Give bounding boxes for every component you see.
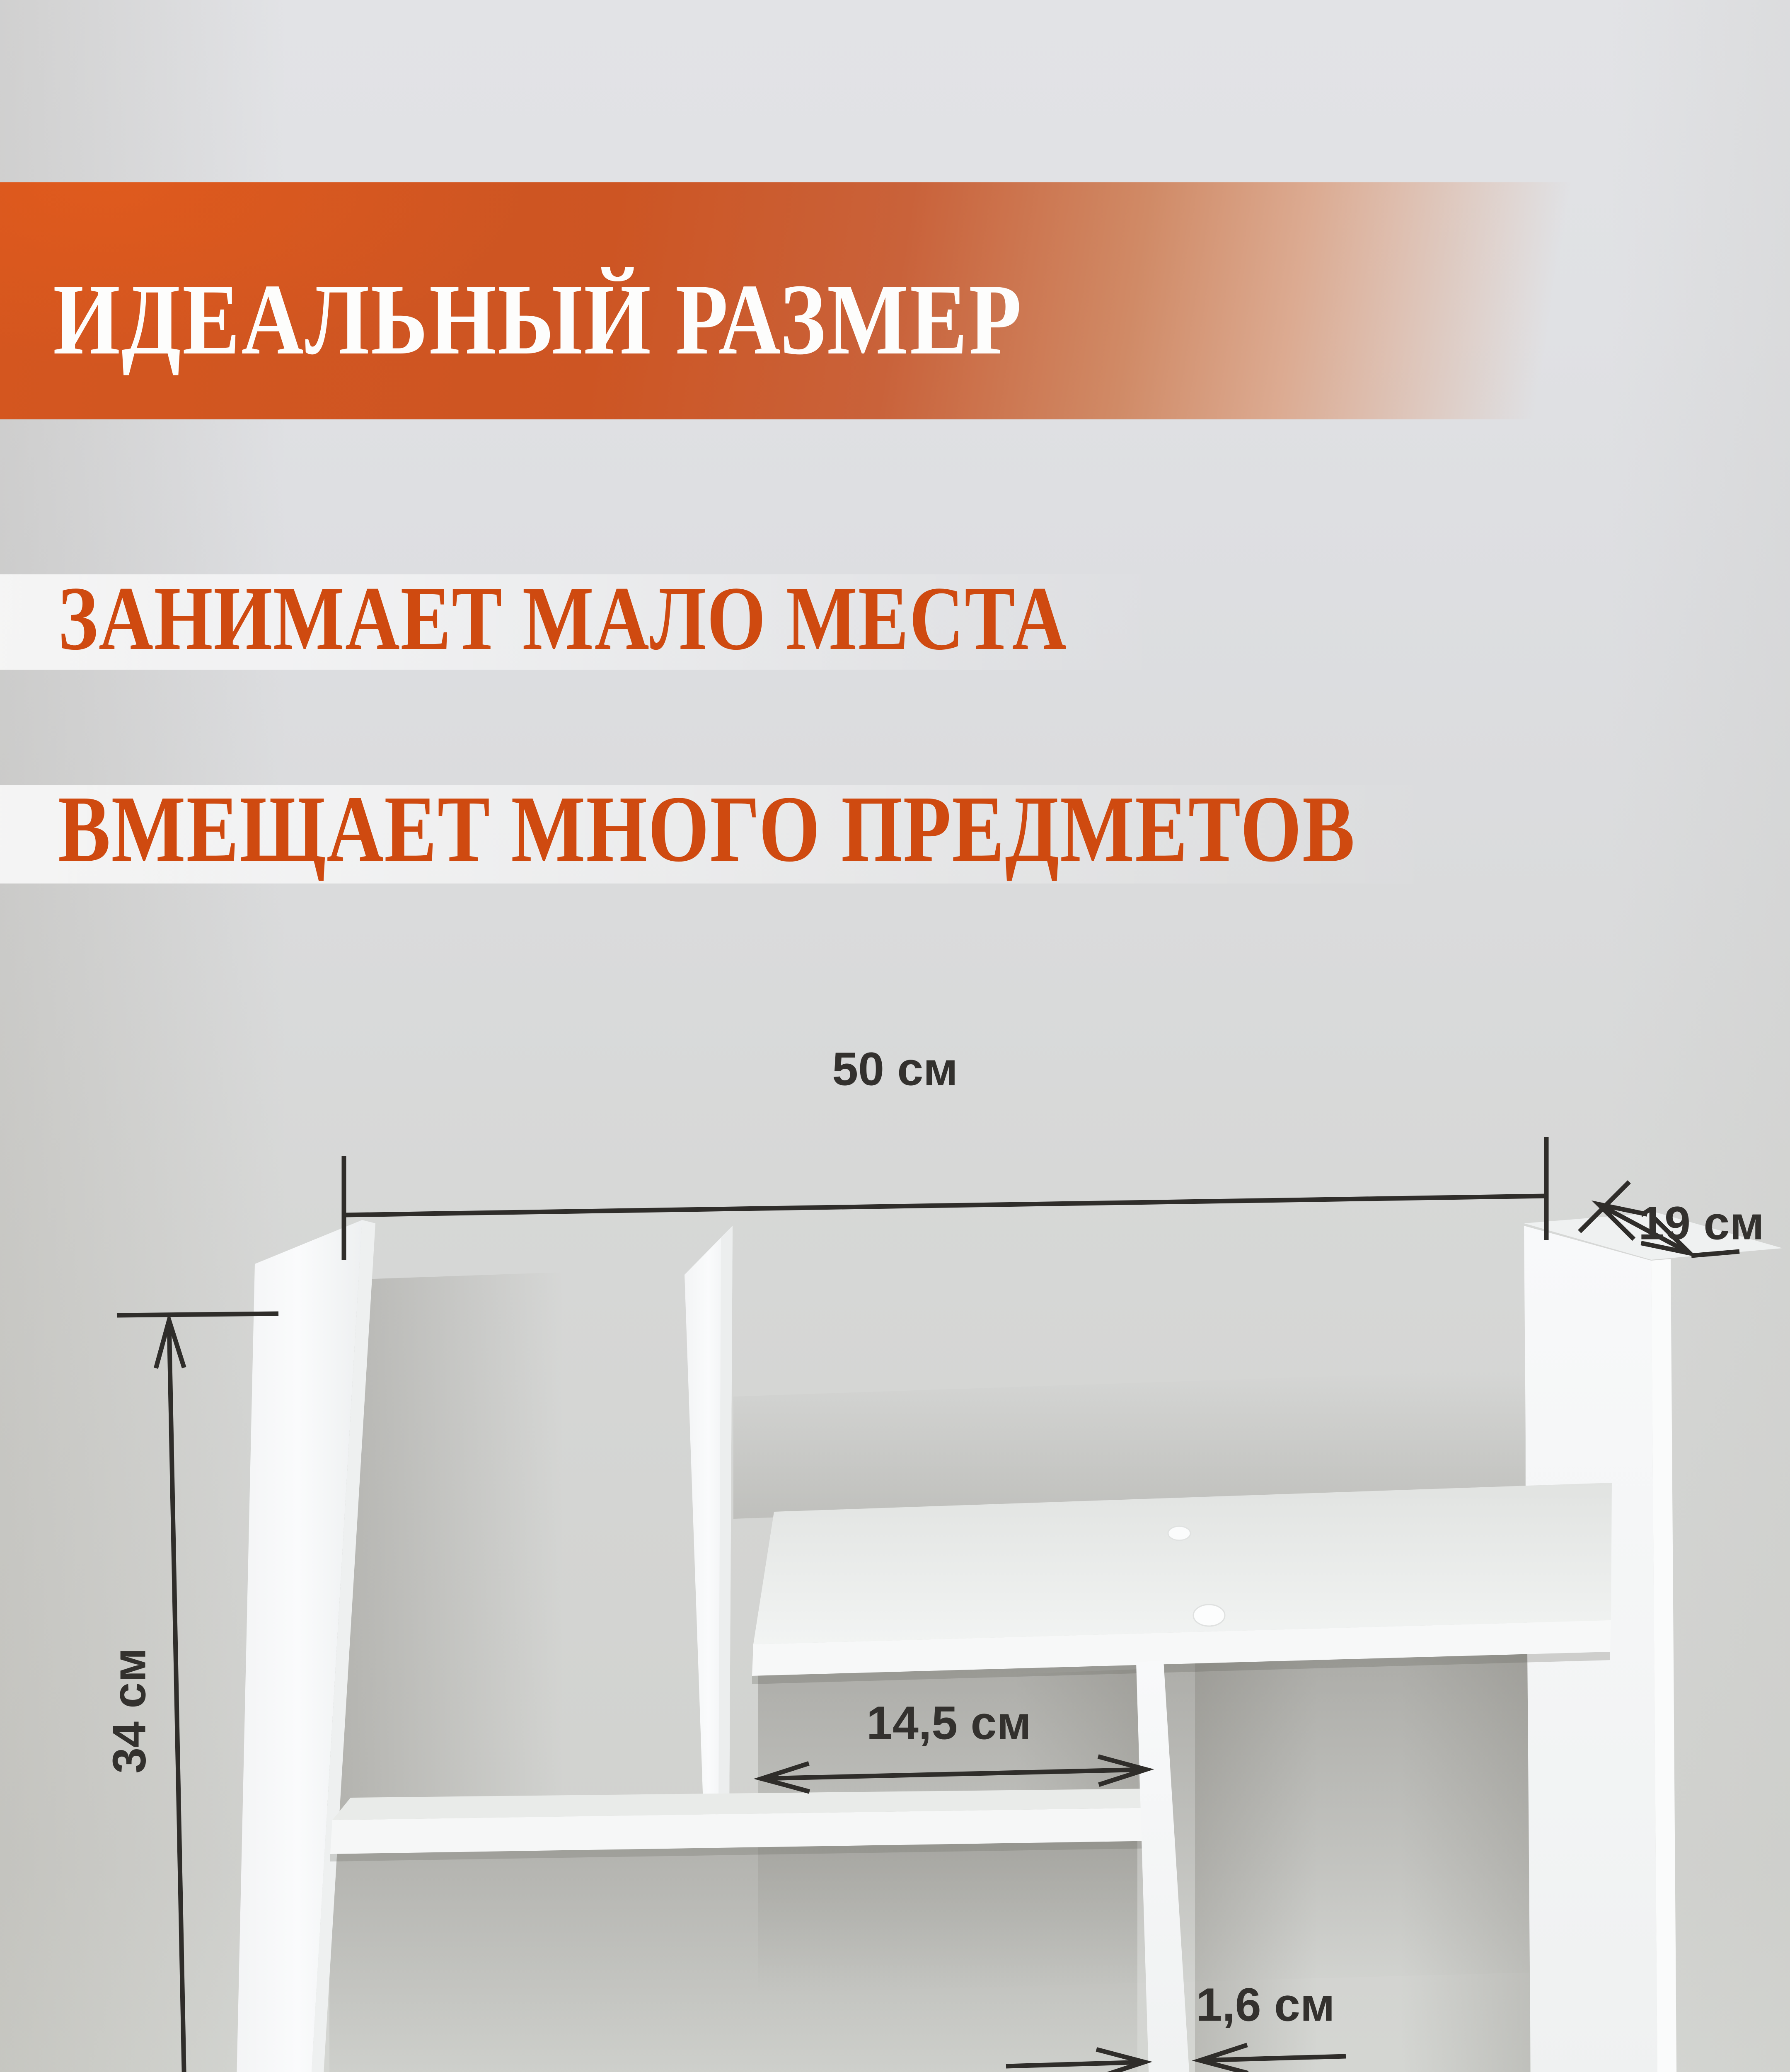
banner: ИДЕАЛЬНЫЙ РАЗМЕР: [0, 182, 1790, 419]
label-panel-thickness: 1,6 см: [1196, 1982, 1335, 2028]
label-total-width: 50 см: [832, 1046, 958, 1093]
product-infographic: ИДЕАЛЬНЫЙ РАЗМЕР ЗАНИМАЕТ МАЛО МЕСТА ВМЕ…: [0, 0, 1790, 2072]
claim-holds-many-items: ВМЕЩАЕТ МНОГО ПРЕДМЕТОВ: [58, 782, 1355, 876]
label-depth: 19 см: [1638, 1200, 1764, 1247]
dimension-width-50: [344, 1137, 1546, 1260]
claim-takes-little-space: ЗАНИМАЕТ МАЛО МЕСТА: [58, 573, 1067, 664]
screw-cap: [1193, 1605, 1225, 1626]
banner-title: ИДЕАЛЬНЫЙ РАЗМЕР: [53, 269, 1023, 370]
label-height: 34 см: [106, 1648, 153, 1774]
label-middle-opening: 14,5 см: [866, 1700, 1031, 1747]
screw-cap: [1168, 1526, 1190, 1540]
